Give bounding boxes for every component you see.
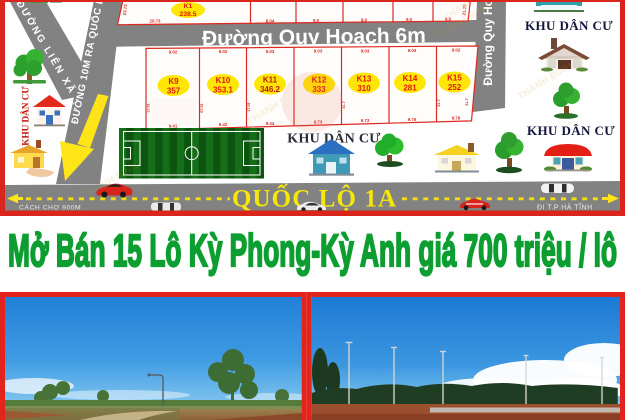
svg-text:9.78: 9.78 [452, 116, 461, 121]
svg-text:238.5: 238.5 [179, 11, 196, 18]
svg-text:9.44: 9.44 [266, 121, 275, 126]
svg-text:K1: K1 [184, 3, 193, 10]
svg-text:CÁCH CHỢ 900M: CÁCH CHỢ 900M [19, 203, 81, 212]
svg-text:K10: K10 [216, 76, 231, 85]
svg-text:9.03: 9.03 [361, 48, 370, 53]
svg-text:9.0: 9.0 [406, 17, 413, 22]
svg-text:20.73: 20.73 [150, 19, 162, 24]
svg-text:KHU DÂN CƯ: KHU DÂN CƯ [525, 18, 613, 33]
svg-text:9.75: 9.75 [408, 117, 417, 122]
svg-text:K14: K14 [403, 74, 418, 83]
svg-text:281: 281 [403, 83, 417, 92]
svg-text:17.01: 17.01 [147, 103, 151, 113]
svg-text:353.1: 353.1 [213, 85, 234, 94]
svg-text:346.2: 346.2 [260, 85, 281, 94]
svg-text:9.02: 9.02 [219, 49, 228, 54]
svg-text:9.0: 9.0 [313, 18, 320, 23]
svg-text:8.0: 8.0 [361, 17, 368, 22]
svg-text:31.7: 31.7 [465, 98, 469, 105]
svg-text:357: 357 [167, 86, 181, 95]
svg-text:31.7: 31.7 [437, 99, 441, 106]
svg-text:07.01: 07.01 [200, 103, 204, 113]
svg-text:9.03: 9.03 [266, 49, 275, 54]
svg-text:K9: K9 [168, 77, 179, 86]
svg-text:252: 252 [448, 83, 462, 92]
svg-text:9.03: 9.03 [408, 48, 417, 53]
svg-text:K11: K11 [263, 76, 278, 85]
svg-text:Mở Bán 15 Lô Kỳ Phong-Kỳ Anh g: Mở Bán 15 Lô Kỳ Phong-Kỳ Anh giá 700 tri… [8, 225, 617, 276]
svg-text:17.01: 17.01 [247, 102, 251, 112]
svg-text:310: 310 [357, 84, 371, 93]
svg-text:9.42: 9.42 [219, 122, 228, 127]
svg-text:9.02: 9.02 [169, 50, 178, 55]
svg-text:9.73: 9.73 [361, 118, 370, 123]
svg-text:9.02: 9.02 [452, 48, 461, 53]
svg-text:KHU DÂN CƯ: KHU DÂN CƯ [21, 86, 31, 146]
svg-text:31.7: 31.7 [342, 101, 346, 108]
svg-text:KHU DÂN CƯ: KHU DÂN CƯ [527, 123, 615, 138]
svg-text:8.04: 8.04 [266, 18, 275, 23]
svg-text:9.03: 9.03 [314, 49, 323, 54]
svg-text:K15: K15 [447, 74, 462, 83]
svg-text:ĐI T.P HÀ TĨNH: ĐI T.P HÀ TĨNH [537, 203, 593, 212]
svg-text:K13: K13 [357, 75, 372, 84]
